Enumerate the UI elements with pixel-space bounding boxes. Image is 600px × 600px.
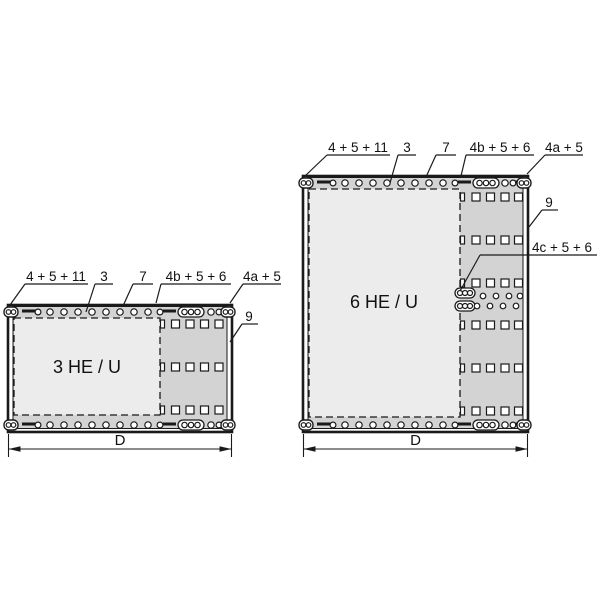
- rivet-hole-icon: [412, 422, 418, 428]
- rivet-hole-icon: [440, 422, 446, 428]
- square-hole-icon: [501, 321, 509, 329]
- square-hole-icon: [472, 407, 480, 415]
- rivet-hole-icon: [458, 291, 463, 296]
- rivet-hole-icon: [452, 180, 458, 186]
- rivet-hole-icon: [131, 422, 137, 428]
- rivet-hole-icon: [502, 180, 508, 186]
- rivet-hole-icon: [487, 303, 493, 309]
- rivet-hole-icon: [75, 309, 81, 315]
- rivet-hole-icon: [35, 422, 41, 428]
- rivet-hole-icon: [477, 180, 482, 185]
- rivet-hole-icon: [145, 309, 151, 315]
- rivet-hole-icon: [89, 422, 95, 428]
- technical-drawing-canvas: 3 HE / U4 + 5 + 11374b + 5 + 64a + 59D6 …: [0, 0, 600, 600]
- rivet-hole-icon: [157, 309, 163, 315]
- square-hole-partial-icon: [461, 407, 465, 415]
- rivet-hole-icon: [195, 309, 200, 314]
- rivet-hole-icon: [35, 309, 41, 315]
- rivet-hole-icon: [384, 180, 390, 186]
- callout-label: 4 + 5 + 11: [328, 140, 388, 155]
- rivet-hole-icon: [356, 180, 362, 186]
- square-hole-icon: [172, 406, 180, 414]
- rivet-hole-icon: [398, 180, 404, 186]
- rivet-hole-icon: [502, 422, 508, 428]
- rivet-hole-icon: [103, 309, 109, 315]
- rivet-hole-icon: [474, 303, 480, 309]
- rivet-hole-icon: [463, 291, 468, 296]
- rivet-hole-icon: [301, 181, 306, 186]
- rivet-hole-icon: [188, 309, 193, 314]
- callout-label: 4b + 5 + 6: [470, 140, 531, 155]
- rivet-hole-icon: [157, 422, 163, 428]
- square-hole-icon: [186, 363, 194, 371]
- rivet-hole-icon: [301, 423, 306, 428]
- rivet-hole-icon: [188, 422, 193, 427]
- square-hole-icon: [515, 279, 523, 287]
- square-hole-icon: [487, 279, 495, 287]
- rivet-hole-icon: [117, 422, 123, 428]
- rivet-hole-icon: [480, 293, 486, 299]
- rivet-hole-icon: [463, 304, 468, 309]
- rivet-hole-icon: [131, 309, 137, 315]
- rivet-hole-icon: [519, 423, 524, 428]
- rivet-hole-icon: [468, 291, 473, 296]
- callout-label: 4b + 5 + 6: [166, 269, 227, 284]
- rivet-hole-icon: [426, 180, 432, 186]
- square-hole-icon: [172, 320, 180, 328]
- callout-label: 4 + 5 + 11: [26, 269, 86, 284]
- rivet-hole-icon: [490, 422, 495, 427]
- square-hole-icon: [472, 279, 480, 287]
- rivet-hole-icon: [356, 422, 362, 428]
- rivet-hole-icon: [483, 422, 488, 427]
- rivet-hole-icon: [370, 180, 376, 186]
- square-hole-icon: [515, 321, 523, 329]
- rivet-hole-icon: [342, 422, 348, 428]
- rivet-hole-icon: [330, 422, 336, 428]
- rivet-hole-icon: [370, 422, 376, 428]
- square-hole-icon: [501, 407, 509, 415]
- rivet-hole-icon: [47, 422, 53, 428]
- callout-label: 9: [245, 309, 253, 324]
- square-hole-icon: [487, 407, 495, 415]
- square-hole-partial-icon: [461, 236, 465, 244]
- rivet-hole-icon: [524, 423, 529, 428]
- square-hole-icon: [215, 406, 223, 414]
- rivet-hole-icon: [89, 309, 95, 315]
- rivet-hole-icon: [117, 309, 123, 315]
- rivet-hole-icon: [493, 293, 499, 299]
- square-hole-icon: [472, 321, 480, 329]
- square-hole-icon: [186, 406, 194, 414]
- callout-label: 3: [403, 140, 411, 155]
- square-hole-icon: [501, 364, 509, 372]
- rivet-hole-icon: [306, 423, 311, 428]
- square-hole-icon: [487, 236, 495, 244]
- rivet-hole-icon: [483, 180, 488, 185]
- square-hole-partial-icon: [461, 193, 465, 201]
- square-hole-icon: [515, 364, 523, 372]
- rivet-hole-icon: [6, 423, 11, 428]
- square-hole-icon: [487, 321, 495, 329]
- callout-label: 4a + 5: [243, 269, 281, 284]
- rivet-hole-icon: [208, 309, 214, 315]
- rivet-hole-icon: [61, 422, 67, 428]
- square-hole-partial-icon: [161, 406, 165, 414]
- dimension-label: D: [410, 432, 421, 449]
- square-hole-icon: [201, 363, 209, 371]
- panel-title-label: 3 HE / U: [53, 357, 121, 377]
- rivet-hole-icon: [182, 309, 187, 314]
- callout-label: 4a + 5: [545, 140, 583, 155]
- rivet-hole-icon: [506, 293, 512, 299]
- panel-title-label: 6 HE / U: [350, 292, 418, 312]
- rivet-hole-icon: [103, 422, 109, 428]
- square-hole-icon: [515, 236, 523, 244]
- rivet-hole-icon: [11, 310, 16, 315]
- rivet-hole-icon: [519, 181, 524, 186]
- rivet-hole-icon: [342, 180, 348, 186]
- rivet-hole-icon: [517, 293, 523, 299]
- rivet-hole-icon: [208, 422, 214, 428]
- rivet-hole-icon: [11, 423, 16, 428]
- rivet-hole-icon: [228, 310, 233, 315]
- square-hole-icon: [472, 364, 480, 372]
- rivet-hole-icon: [458, 304, 463, 309]
- square-hole-icon: [501, 279, 509, 287]
- square-hole-icon: [186, 320, 194, 328]
- square-hole-icon: [515, 407, 523, 415]
- callout-label: 4c + 5 + 6: [532, 240, 592, 255]
- rivet-hole-icon: [452, 422, 458, 428]
- rivet-hole-icon: [6, 310, 11, 315]
- rivet-hole-icon: [412, 180, 418, 186]
- callout-label: 9: [545, 195, 553, 210]
- callout-label: 3: [100, 269, 108, 284]
- square-hole-icon: [501, 236, 509, 244]
- callout-label: 7: [139, 269, 147, 284]
- square-hole-icon: [215, 320, 223, 328]
- rivet-hole-icon: [75, 422, 81, 428]
- callout-label: 7: [442, 140, 450, 155]
- square-hole-icon: [487, 364, 495, 372]
- square-hole-icon: [501, 193, 509, 201]
- rivet-hole-icon: [223, 423, 228, 428]
- square-hole-partial-icon: [461, 321, 465, 329]
- rivet-hole-icon: [398, 422, 404, 428]
- rivet-hole-icon: [47, 309, 53, 315]
- rivet-hole-icon: [524, 181, 529, 186]
- square-hole-icon: [472, 236, 480, 244]
- square-hole-partial-icon: [161, 320, 165, 328]
- dimension-label: D: [115, 432, 126, 449]
- rivet-hole-icon: [384, 422, 390, 428]
- rivet-hole-icon: [330, 180, 336, 186]
- rivet-hole-icon: [513, 303, 519, 309]
- rivet-hole-icon: [306, 181, 311, 186]
- rivet-hole-icon: [145, 422, 151, 428]
- rivet-hole-icon: [228, 423, 233, 428]
- square-hole-icon: [487, 193, 495, 201]
- square-hole-icon: [515, 193, 523, 201]
- rivet-hole-icon: [490, 180, 495, 185]
- rivet-hole-icon: [500, 303, 506, 309]
- rivet-hole-icon: [61, 309, 67, 315]
- square-hole-partial-icon: [161, 363, 165, 371]
- rivet-hole-icon: [182, 422, 187, 427]
- side-panel-diagram: 3 HE / U4 + 5 + 11374b + 5 + 64a + 59D6 …: [0, 0, 600, 600]
- rivet-hole-icon: [223, 310, 228, 315]
- rivet-hole-icon: [440, 180, 446, 186]
- rivet-hole-icon: [468, 304, 473, 309]
- square-hole-icon: [215, 363, 223, 371]
- square-hole-icon: [172, 363, 180, 371]
- square-hole-icon: [201, 406, 209, 414]
- rivet-hole-icon: [195, 422, 200, 427]
- square-hole-partial-icon: [461, 364, 465, 372]
- square-hole-icon: [472, 193, 480, 201]
- rivet-hole-icon: [426, 422, 432, 428]
- rivet-hole-icon: [477, 422, 482, 427]
- square-hole-icon: [201, 320, 209, 328]
